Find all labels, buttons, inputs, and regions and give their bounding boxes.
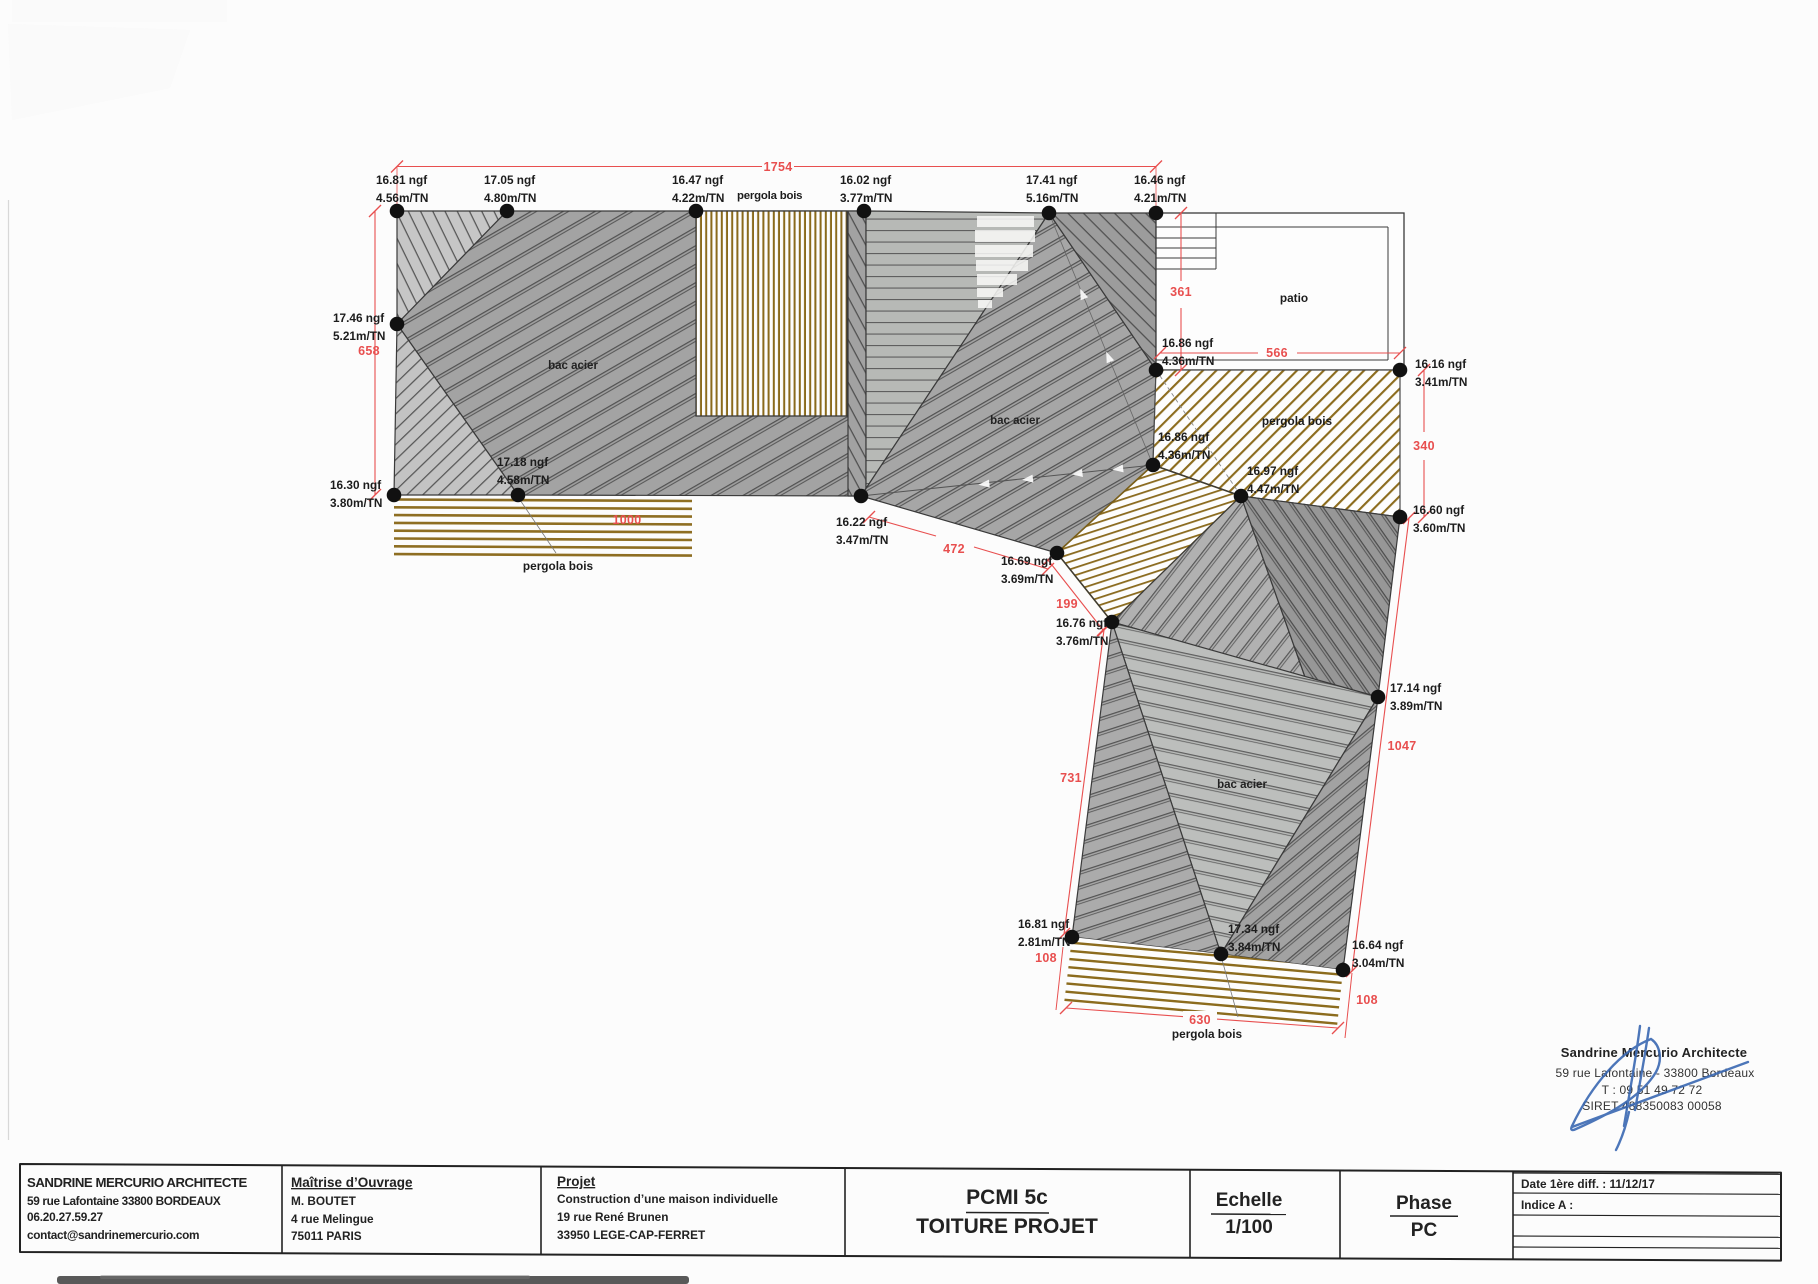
svg-text:108: 108 (1035, 951, 1057, 965)
svg-text:Date 1ère diff. : 11/12/17: Date 1ère diff. : 11/12/17 (1521, 1177, 1655, 1191)
svg-text:5.16m/TN: 5.16m/TN (1026, 191, 1078, 205)
svg-text:16.16 ngf: 16.16 ngf (1415, 357, 1466, 371)
svg-text:4.56m/TN: 4.56m/TN (376, 191, 428, 205)
svg-text:5.21m/TN: 5.21m/TN (333, 329, 385, 343)
svg-text:3.89m/TN: 3.89m/TN (1390, 699, 1442, 713)
svg-text:3.47m/TN: 3.47m/TN (836, 533, 888, 547)
svg-text:75011 PARIS: 75011 PARIS (291, 1229, 362, 1243)
svg-text:630: 630 (1189, 1013, 1211, 1027)
svg-text:4.80m/TN: 4.80m/TN (484, 191, 536, 205)
svg-text:19 rue René Brunen: 19 rue René Brunen (557, 1210, 668, 1224)
svg-text:1/100: 1/100 (1225, 1217, 1273, 1238)
svg-text:3.80m/TN: 3.80m/TN (330, 496, 382, 510)
svg-text:17.34 ngf: 17.34 ngf (1228, 922, 1279, 936)
svg-text:16.76 ngf: 16.76 ngf (1056, 616, 1107, 630)
svg-text:658: 658 (358, 344, 380, 358)
svg-text:pergola bois: pergola bois (1262, 414, 1333, 428)
svg-text:17.14 ngf: 17.14 ngf (1390, 681, 1441, 695)
svg-text:3.60m/TN: 3.60m/TN (1413, 521, 1465, 535)
svg-text:4.21m/TN: 4.21m/TN (1134, 191, 1186, 205)
svg-text:16.97 ngf: 16.97 ngf (1247, 464, 1298, 478)
svg-text:4.36m/TN: 4.36m/TN (1162, 354, 1214, 368)
svg-text:4.58m/TN: 4.58m/TN (497, 473, 549, 487)
svg-text:Sandrine Mercurio Architecte: Sandrine Mercurio Architecte (1561, 1045, 1747, 1060)
svg-text:Construction d’une maison indi: Construction d’une maison individuelle (557, 1192, 778, 1206)
svg-text:4.47m/TN: 4.47m/TN (1247, 482, 1299, 496)
svg-text:108: 108 (1356, 993, 1378, 1007)
svg-text:16.86 ngf: 16.86 ngf (1162, 336, 1213, 350)
svg-text:17.46 ngf: 17.46 ngf (333, 311, 384, 325)
svg-text:3.76m/TN: 3.76m/TN (1056, 634, 1108, 648)
svg-text:SANDRINE MERCURIO ARCHITECTE: SANDRINE MERCURIO ARCHITECTE (27, 1175, 248, 1190)
svg-text:16.86 ngf: 16.86 ngf (1158, 430, 1209, 444)
svg-text:3.41m/TN: 3.41m/TN (1415, 375, 1467, 389)
svg-text:16.02 ngf: 16.02 ngf (840, 173, 891, 187)
svg-text:472: 472 (943, 542, 965, 556)
svg-text:bac acier: bac acier (990, 415, 1040, 427)
svg-text:pergola bois: pergola bois (1172, 1027, 1243, 1041)
svg-text:contact@sandrinemercurio.com: contact@sandrinemercurio.com (27, 1228, 199, 1242)
svg-text:3.77m/TN: 3.77m/TN (840, 191, 892, 205)
svg-text:PC: PC (1411, 1220, 1438, 1241)
svg-text:59 rue Lafontaine 33800 BORDEA: 59 rue Lafontaine 33800 BORDEAUX (27, 1194, 221, 1208)
svg-text:361: 361 (1170, 285, 1192, 299)
svg-text:3.69m/TN: 3.69m/TN (1001, 572, 1053, 586)
svg-text:1754: 1754 (763, 160, 792, 174)
svg-text:Echelle: Echelle (1216, 1190, 1283, 1211)
svg-text:Phase: Phase (1396, 1193, 1452, 1214)
svg-text:Projet: Projet (557, 1174, 596, 1189)
svg-text:16.64 ngf: 16.64 ngf (1352, 938, 1403, 952)
svg-text:16.46 ngf: 16.46 ngf (1134, 173, 1185, 187)
svg-text:2.81m/TN: 2.81m/TN (1018, 935, 1070, 949)
svg-text:16.81 ngf: 16.81 ngf (376, 173, 427, 187)
svg-text:16.60 ngf: 16.60 ngf (1413, 503, 1464, 517)
svg-text:199: 199 (1056, 597, 1078, 611)
svg-text:4.22m/TN: 4.22m/TN (672, 191, 724, 205)
svg-text:16.22 ngf: 16.22 ngf (836, 515, 887, 529)
svg-text:17.41 ngf: 17.41 ngf (1026, 173, 1077, 187)
svg-text:bac acier: bac acier (548, 360, 598, 372)
svg-text:pergola bois: pergola bois (737, 190, 802, 202)
svg-text:patio: patio (1280, 291, 1308, 305)
svg-text:M. BOUTET: M. BOUTET (291, 1194, 357, 1208)
svg-text:17.18 ngf: 17.18 ngf (497, 455, 548, 469)
svg-text:SIRET 488350083 00058: SIRET 488350083 00058 (1582, 1099, 1722, 1113)
svg-text:16.81 ngf: 16.81 ngf (1018, 917, 1069, 931)
svg-text:bac acier: bac acier (1217, 779, 1267, 791)
svg-text:06.20.27.59.27: 06.20.27.59.27 (27, 1210, 104, 1224)
svg-text:Maîtrise d’Ouvrage: Maîtrise d’Ouvrage (291, 1175, 413, 1190)
svg-text:1047: 1047 (1387, 739, 1416, 753)
svg-text:Indice A :: Indice A : (1521, 1198, 1573, 1212)
svg-text:3.84m/TN: 3.84m/TN (1228, 940, 1280, 954)
svg-text:4.36m/TN: 4.36m/TN (1158, 448, 1210, 462)
svg-text:pergola bois: pergola bois (523, 559, 594, 573)
svg-text:340: 340 (1413, 439, 1435, 453)
svg-text:4 rue Melingue: 4 rue Melingue (291, 1212, 374, 1226)
svg-text:PCMI 5c: PCMI 5c (966, 1186, 1048, 1209)
svg-text:16.30 ngf: 16.30 ngf (330, 478, 381, 492)
svg-text:16.69 ngf: 16.69 ngf (1001, 554, 1052, 568)
svg-text:TOITURE PROJET: TOITURE PROJET (916, 1215, 1098, 1238)
svg-text:1000: 1000 (612, 513, 641, 527)
svg-text:16.47 ngf: 16.47 ngf (672, 173, 723, 187)
svg-text:17.05 ngf: 17.05 ngf (484, 173, 535, 187)
svg-text:3.04m/TN: 3.04m/TN (1352, 956, 1404, 970)
svg-text:33950 LEGE-CAP-FERRET: 33950 LEGE-CAP-FERRET (557, 1228, 706, 1242)
svg-text:566: 566 (1266, 346, 1288, 360)
svg-text:731: 731 (1060, 771, 1082, 785)
